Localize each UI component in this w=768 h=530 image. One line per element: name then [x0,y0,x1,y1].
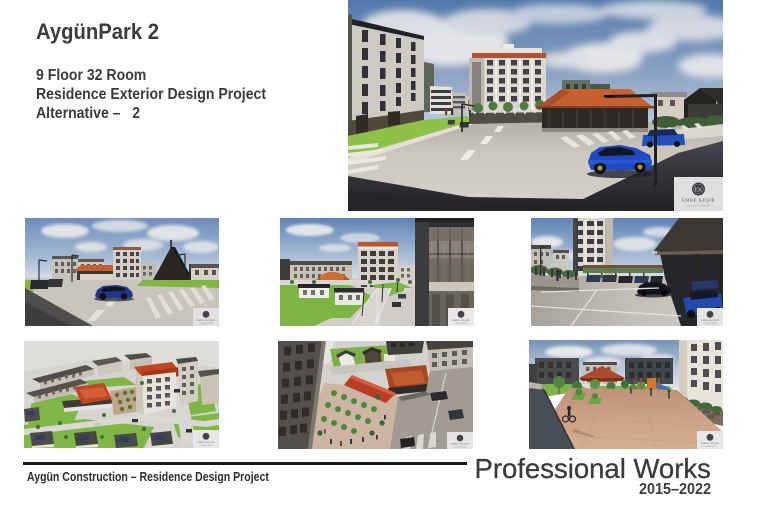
svg-text:— ARCHITECTURE —: — ARCHITECTURE — [681,205,714,208]
svg-text:EMRE KEŞİR: EMRE KEŞİR [197,319,215,322]
svg-text:EMRE KEŞİR: EMRE KEŞİR [452,319,470,322]
svg-text:EMRE KEŞİR: EMRE KEŞİR [682,198,716,203]
svg-text:EMRE KEŞİR: EMRE KEŞİR [701,442,719,445]
svg-text:EK: EK [695,187,704,193]
svg-text:EMRE KEŞİR: EMRE KEŞİR [197,441,215,444]
svg-text:EMRE KEŞİR: EMRE KEŞİR [701,319,719,322]
svg-text:EMRE KEŞİR: EMRE KEŞİR [451,443,469,446]
